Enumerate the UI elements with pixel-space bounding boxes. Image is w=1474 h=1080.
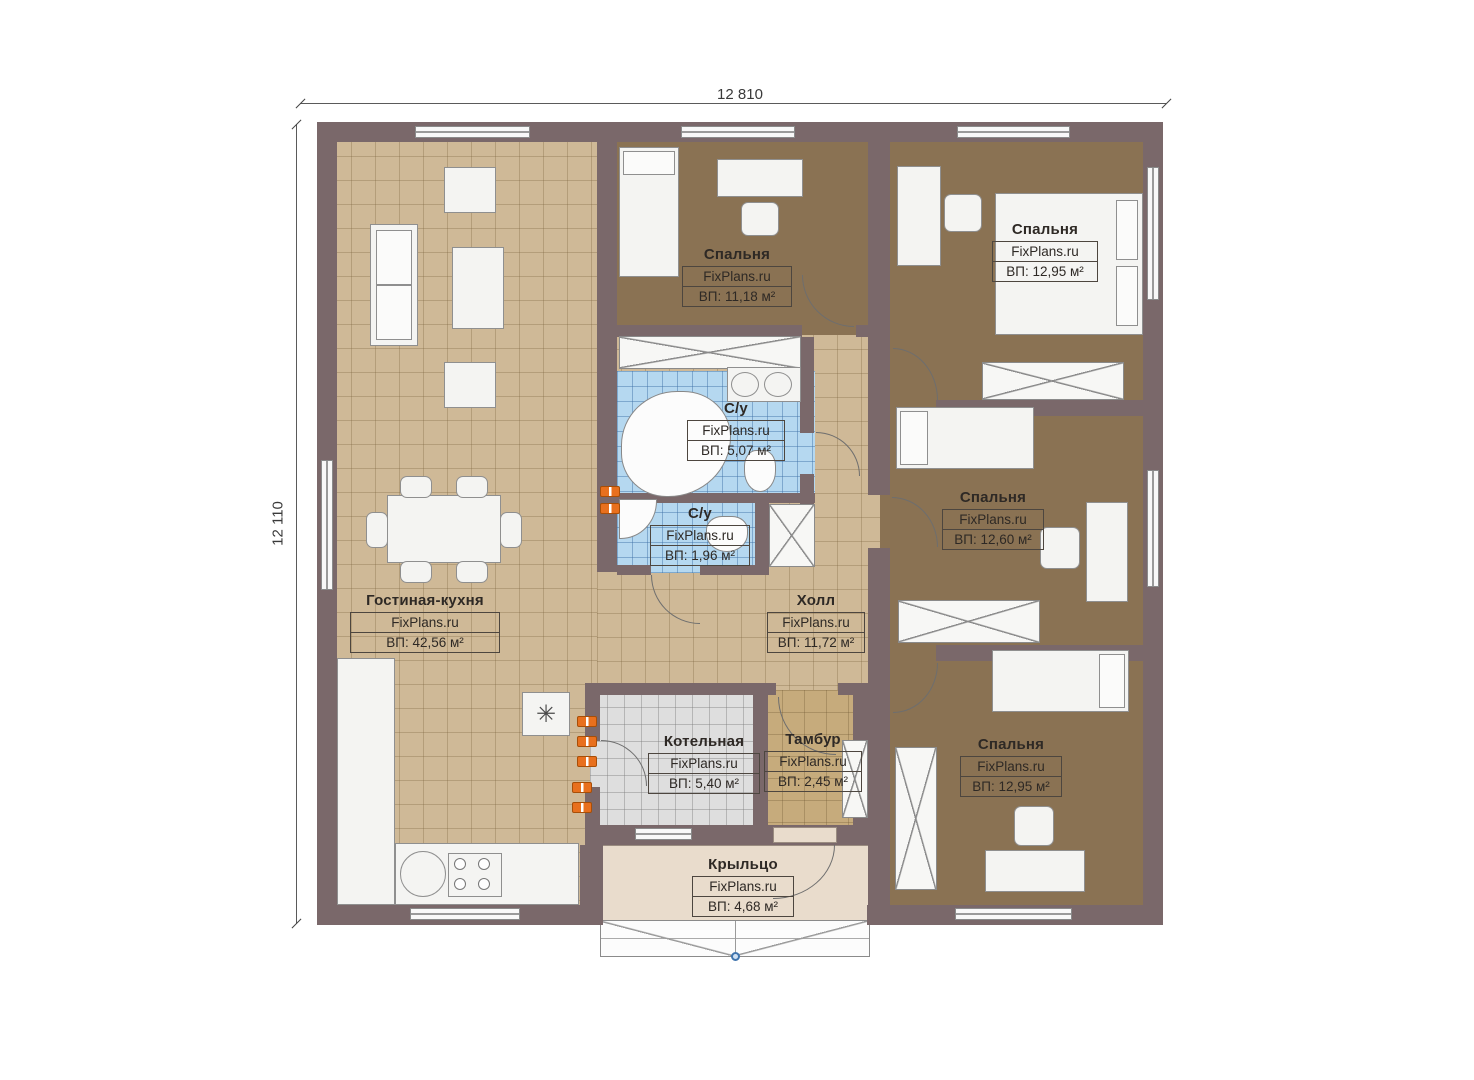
window-top-bedroom2	[957, 126, 1070, 138]
window-bottom-kitchen	[410, 908, 520, 920]
stove-burner	[454, 858, 466, 870]
dining-table	[387, 495, 501, 563]
wardrobe-icon	[898, 600, 1040, 643]
armchair	[444, 362, 496, 408]
bed-pillow	[1099, 654, 1125, 708]
room-label-bedroom2: Спальня FixPlans.ru ВП: 12,95 м²	[992, 221, 1098, 282]
room-area: ВП: 12,60 м²	[943, 530, 1043, 549]
room-area: ВП: 5,07 м²	[688, 441, 784, 460]
watermark: FixPlans.ru	[688, 421, 784, 441]
kitchen-sink	[400, 851, 446, 897]
window-top-living	[415, 126, 530, 138]
stove-burner	[478, 878, 490, 890]
dining-chair	[456, 476, 488, 498]
room-area: ВП: 4,68 м²	[693, 897, 793, 916]
bed-pillow	[1116, 200, 1138, 260]
room-area: ВП: 11,18 м²	[683, 287, 791, 306]
room-name: Спальня	[942, 489, 1044, 506]
sink	[764, 372, 792, 397]
desk	[985, 850, 1085, 892]
room-name: Гостиная-кухня	[350, 592, 500, 609]
coffee-table	[452, 247, 504, 329]
watermark: FixPlans.ru	[765, 752, 861, 772]
wardrobe-icon	[895, 747, 937, 890]
dining-chair	[400, 476, 432, 498]
desk-chair	[1014, 806, 1054, 846]
dining-chair	[500, 512, 522, 548]
room-label-living-kitchen: Гостиная-кухня FixPlans.ru ВП: 42,56 м²	[350, 592, 500, 653]
room-label-tambour: Тамбур FixPlans.ru ВП: 2,45 м²	[764, 731, 862, 792]
wall-center-right-lower	[868, 548, 890, 905]
wardrobe-icon	[619, 336, 801, 369]
room-area: ВП: 42,56 м²	[351, 633, 499, 652]
wall-center-right-upper	[868, 142, 890, 495]
room-area: ВП: 12,95 м²	[961, 777, 1061, 796]
wall-jog-left	[580, 845, 603, 925]
wall-bath1-right-a	[800, 337, 814, 433]
desk-chair	[741, 202, 779, 236]
step-diagonal	[601, 921, 735, 956]
room-name: Спальня	[682, 246, 792, 263]
step-centerline	[735, 921, 736, 956]
room-label-bathroom-large: С/у FixPlans.ru ВП: 5,07 м²	[687, 400, 785, 461]
room-area: ВП: 1,96 м²	[651, 546, 749, 565]
wall-boiler-top	[585, 683, 768, 695]
bed-pillow	[623, 151, 675, 175]
room-label-bedroom4: Спальня FixPlans.ru ВП: 12,95 м²	[960, 736, 1062, 797]
sofa-cushion	[376, 230, 412, 285]
room-label-bathroom-small: С/у FixPlans.ru ВП: 1,96 м²	[650, 505, 750, 566]
room-name: Спальня	[960, 736, 1062, 753]
room-area: ВП: 2,45 м²	[765, 772, 861, 791]
radiator-icon	[600, 503, 620, 514]
window-left-living	[321, 460, 333, 590]
room-label-porch: Крыльцо FixPlans.ru ВП: 4,68 м²	[692, 856, 794, 917]
entry-point-marker	[731, 952, 740, 961]
room-label-bedroom1: Спальня FixPlans.ru ВП: 11,18 м²	[682, 246, 792, 307]
radiator-icon	[572, 782, 592, 793]
window-bottom-boiler	[635, 828, 692, 840]
dining-chair	[400, 561, 432, 583]
radiator-icon	[577, 716, 597, 727]
room-area: ВП: 11,72 м²	[768, 633, 864, 652]
sofa-cushion	[376, 285, 412, 340]
wardrobe-icon	[769, 504, 815, 567]
step-diagonal	[735, 921, 869, 956]
room-name: Крыльцо	[692, 856, 794, 873]
window-right-bedroom3	[1147, 470, 1159, 587]
room-name: С/у	[650, 505, 750, 522]
watermark: FixPlans.ru	[768, 613, 864, 633]
floor-plan: ✳ Гостиная-кухня FixPlans.ru ВП: 42,56 м…	[0, 0, 1474, 1080]
room-label-boiler: Котельная FixPlans.ru ВП: 5,40 м²	[648, 733, 760, 794]
watermark: FixPlans.ru	[943, 510, 1043, 530]
dimension-label-left: 12 110	[270, 484, 287, 564]
watermark: FixPlans.ru	[993, 242, 1097, 262]
dimension-line-left	[296, 124, 297, 924]
bed-pillow	[1116, 266, 1138, 326]
wardrobe-icon	[982, 362, 1124, 400]
window-right-bedroom2	[1147, 167, 1159, 300]
wall-boiler-left-b	[585, 787, 600, 845]
desk	[897, 166, 941, 266]
wall-tambour-top-b	[838, 683, 868, 695]
watermark: FixPlans.ru	[651, 526, 749, 546]
dimension-label-top: 12 810	[700, 86, 780, 103]
wall-bath2-bottom-b	[700, 565, 769, 575]
room-name: Холл	[767, 592, 865, 609]
radiator-icon	[572, 802, 592, 813]
watermark: FixPlans.ru	[693, 877, 793, 897]
armchair	[444, 167, 496, 213]
radiator-icon	[600, 486, 620, 497]
room-name: Спальня	[992, 221, 1098, 238]
room-name: Котельная	[648, 733, 760, 750]
room-name: С/у	[687, 400, 785, 417]
room-label-bedroom3: Спальня FixPlans.ru ВП: 12,60 м²	[942, 489, 1044, 550]
boiler-glyph: ✳	[536, 700, 556, 729]
desk	[717, 159, 803, 197]
radiator-icon	[577, 736, 597, 747]
watermark: FixPlans.ru	[961, 757, 1061, 777]
bed-pillow	[900, 411, 928, 465]
desk-chair	[1040, 527, 1080, 569]
wall-bath2-bottom-a	[617, 565, 651, 575]
watermark: FixPlans.ru	[683, 267, 791, 287]
window-top-bedroom1	[681, 126, 795, 138]
boiler-icon: ✳	[522, 692, 570, 736]
kitchen-counter-left	[337, 658, 395, 905]
room-area: ВП: 12,95 м²	[993, 262, 1097, 281]
room-name: Тамбур	[764, 731, 862, 748]
dimension-line-top	[300, 103, 1166, 104]
wall-bedroom1-bottom-stub	[856, 325, 868, 337]
room-area: ВП: 5,40 м²	[649, 774, 759, 793]
room-label-hall: Холл FixPlans.ru ВП: 11,72 м²	[767, 592, 865, 653]
desk	[1086, 502, 1128, 602]
stove-burner	[454, 878, 466, 890]
dining-chair	[366, 512, 388, 548]
desk-chair	[944, 194, 982, 232]
dining-chair	[456, 561, 488, 583]
stove-burner	[478, 858, 490, 870]
window-bottom-bedroom4	[955, 908, 1072, 920]
watermark: FixPlans.ru	[351, 613, 499, 633]
watermark: FixPlans.ru	[649, 754, 759, 774]
radiator-icon	[577, 756, 597, 767]
sink	[731, 372, 759, 397]
wall-tambour-top-a	[760, 683, 776, 695]
wall-bath2-right	[755, 503, 769, 565]
entrance-door-threshold	[773, 827, 837, 843]
